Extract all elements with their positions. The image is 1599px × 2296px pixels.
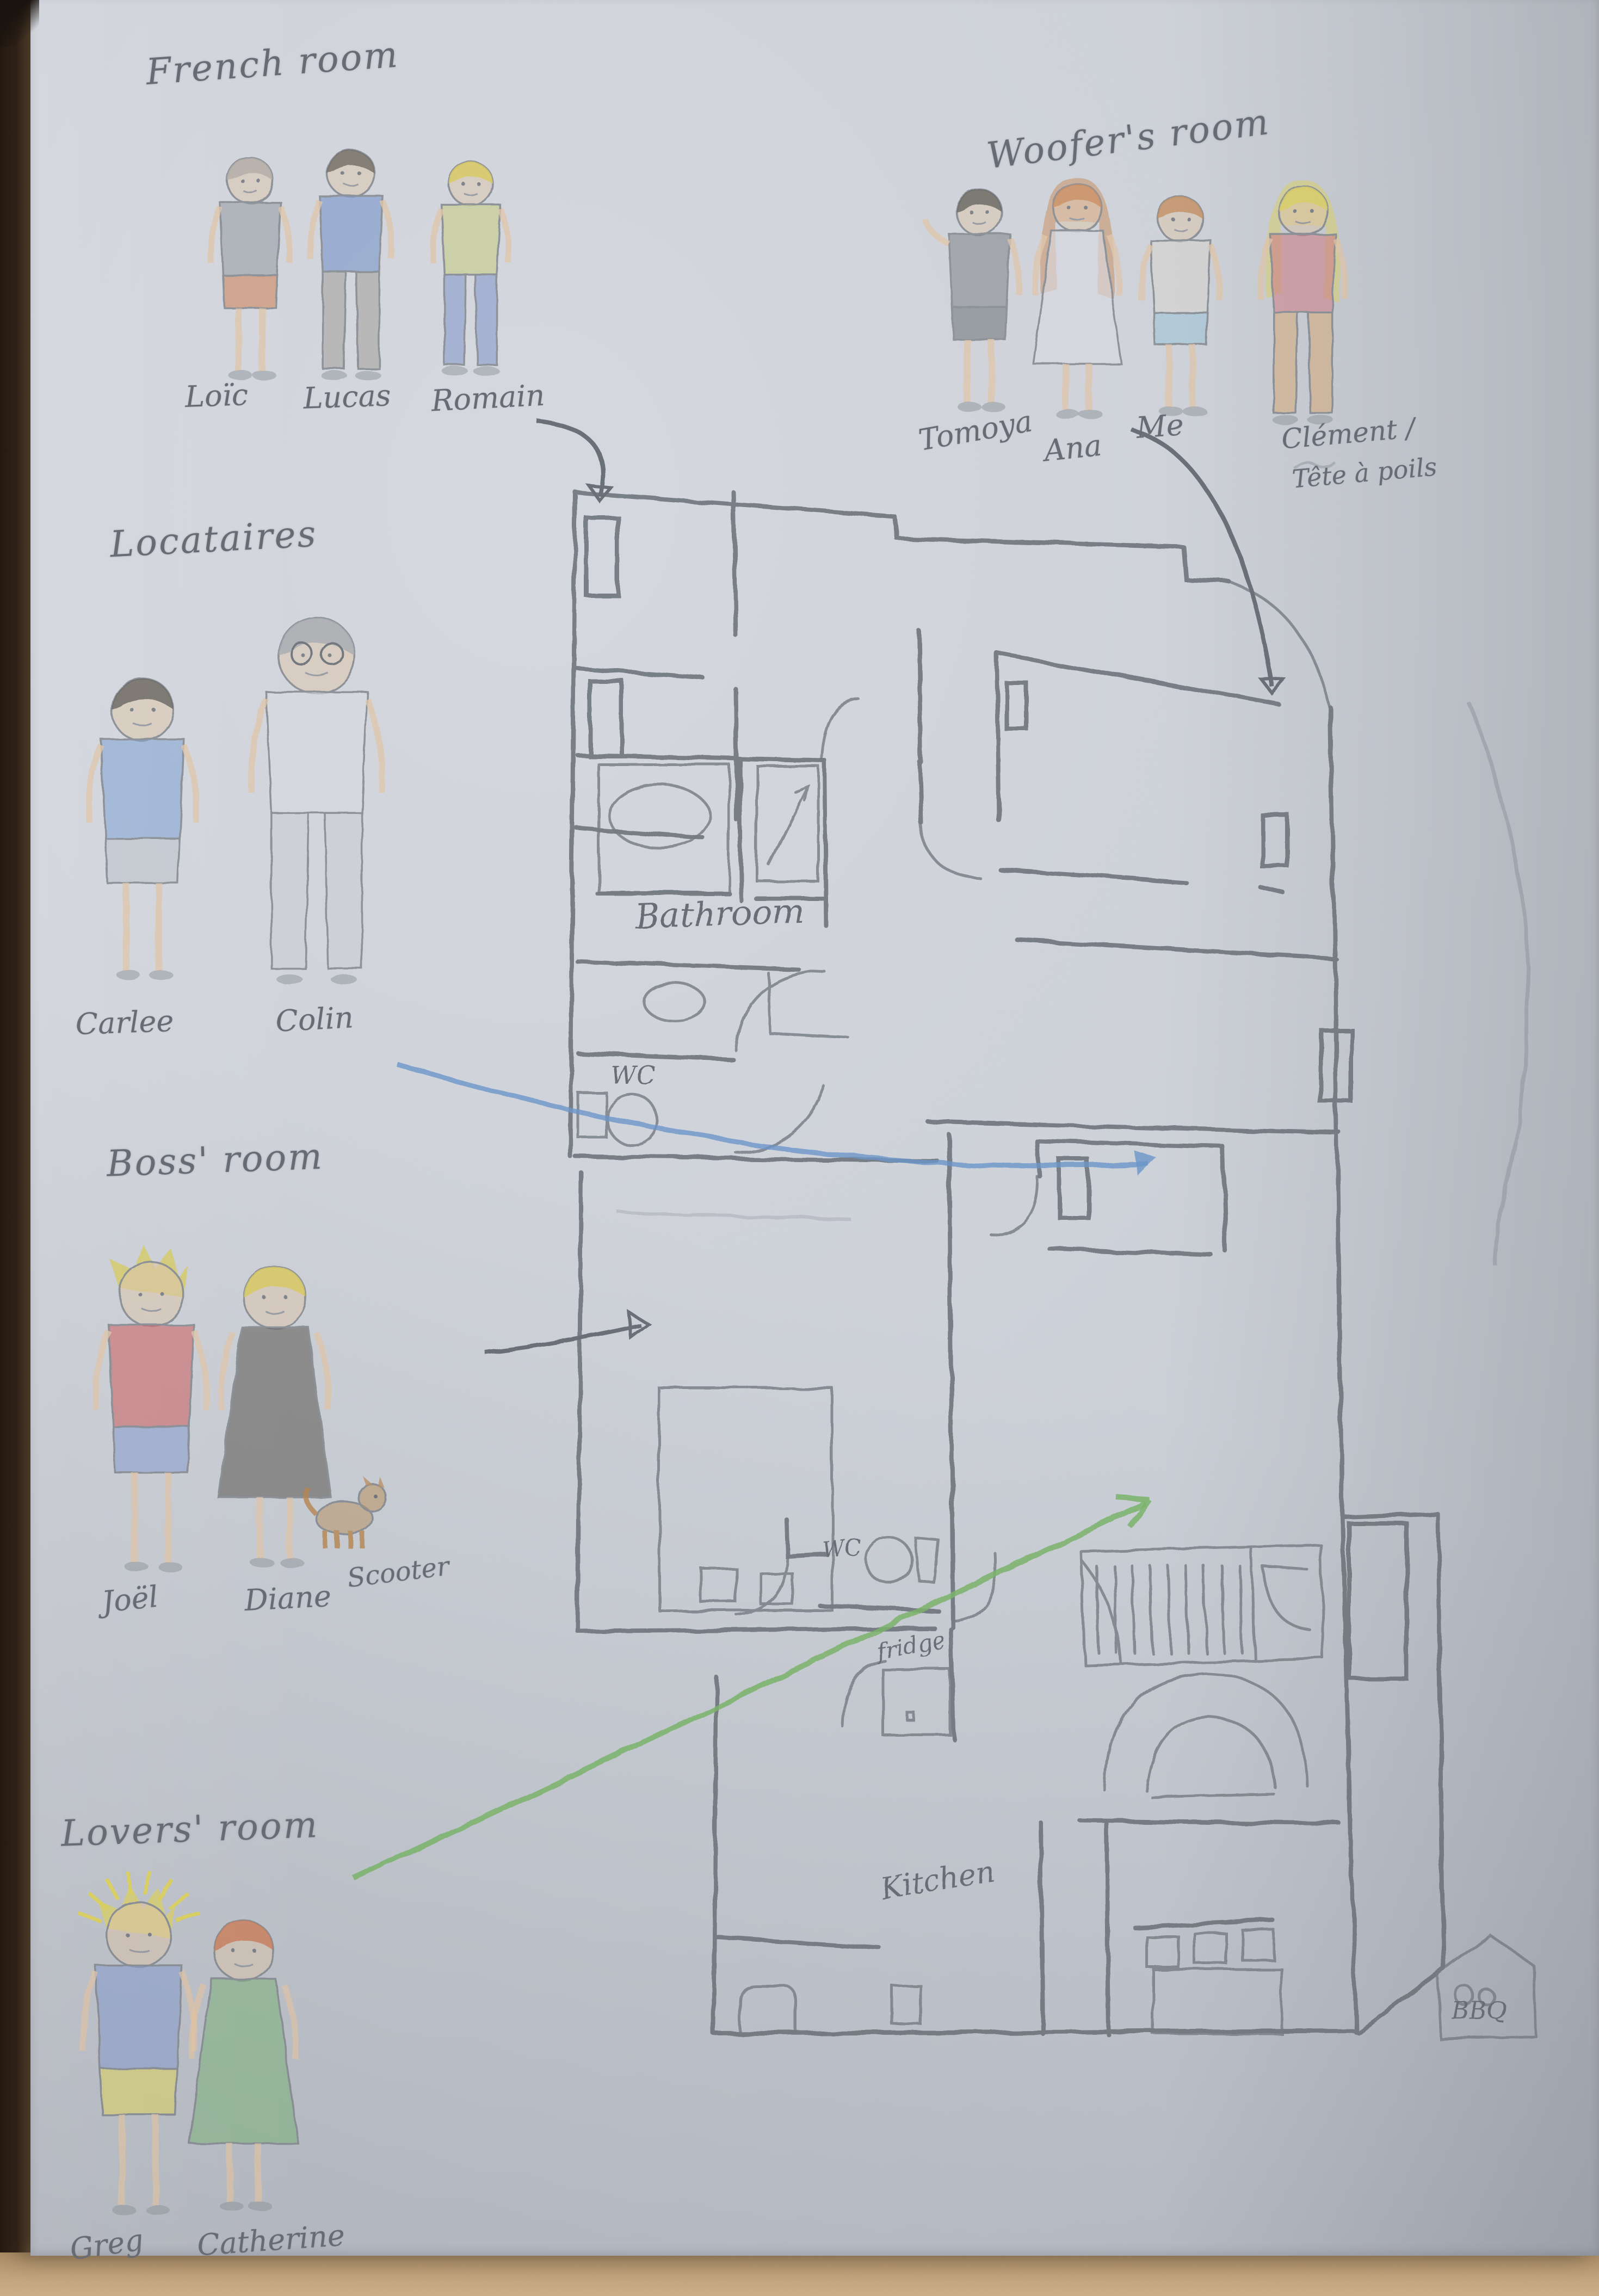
wall xyxy=(1107,1823,1109,2035)
wall xyxy=(714,1677,716,2034)
wall xyxy=(951,1630,954,1739)
wall xyxy=(733,492,736,635)
room-label-wc-1: WC xyxy=(610,1060,655,1090)
person-name-romain: Romain xyxy=(419,378,557,419)
paper-grain xyxy=(30,0,1599,2256)
photo-background: Bathroom WC WC fridge Kitchen BBQ French… xyxy=(0,0,1599,2296)
person-name-me: Me xyxy=(1126,407,1194,446)
person-name-colin: Colin xyxy=(249,999,381,1040)
person-name-diane: Diane xyxy=(225,1578,351,1619)
person-name-carlee: Carlee xyxy=(56,1003,193,1042)
wall xyxy=(1038,1141,1040,1176)
wall xyxy=(740,761,742,901)
wall xyxy=(825,761,826,926)
wall xyxy=(1041,1823,1043,2034)
wall xyxy=(736,689,737,820)
room-label-bbq: BBQ xyxy=(1451,1997,1507,2025)
person-name-lucas: Lucas xyxy=(298,378,397,416)
wall xyxy=(918,630,921,762)
wall xyxy=(997,653,999,820)
wall xyxy=(919,762,921,823)
person-name-loic: Loïc xyxy=(172,377,261,415)
room-label-bathroom: Bathroom xyxy=(634,891,805,936)
wall xyxy=(1223,1147,1226,1251)
room-label-wc-2: WC xyxy=(821,1535,862,1563)
